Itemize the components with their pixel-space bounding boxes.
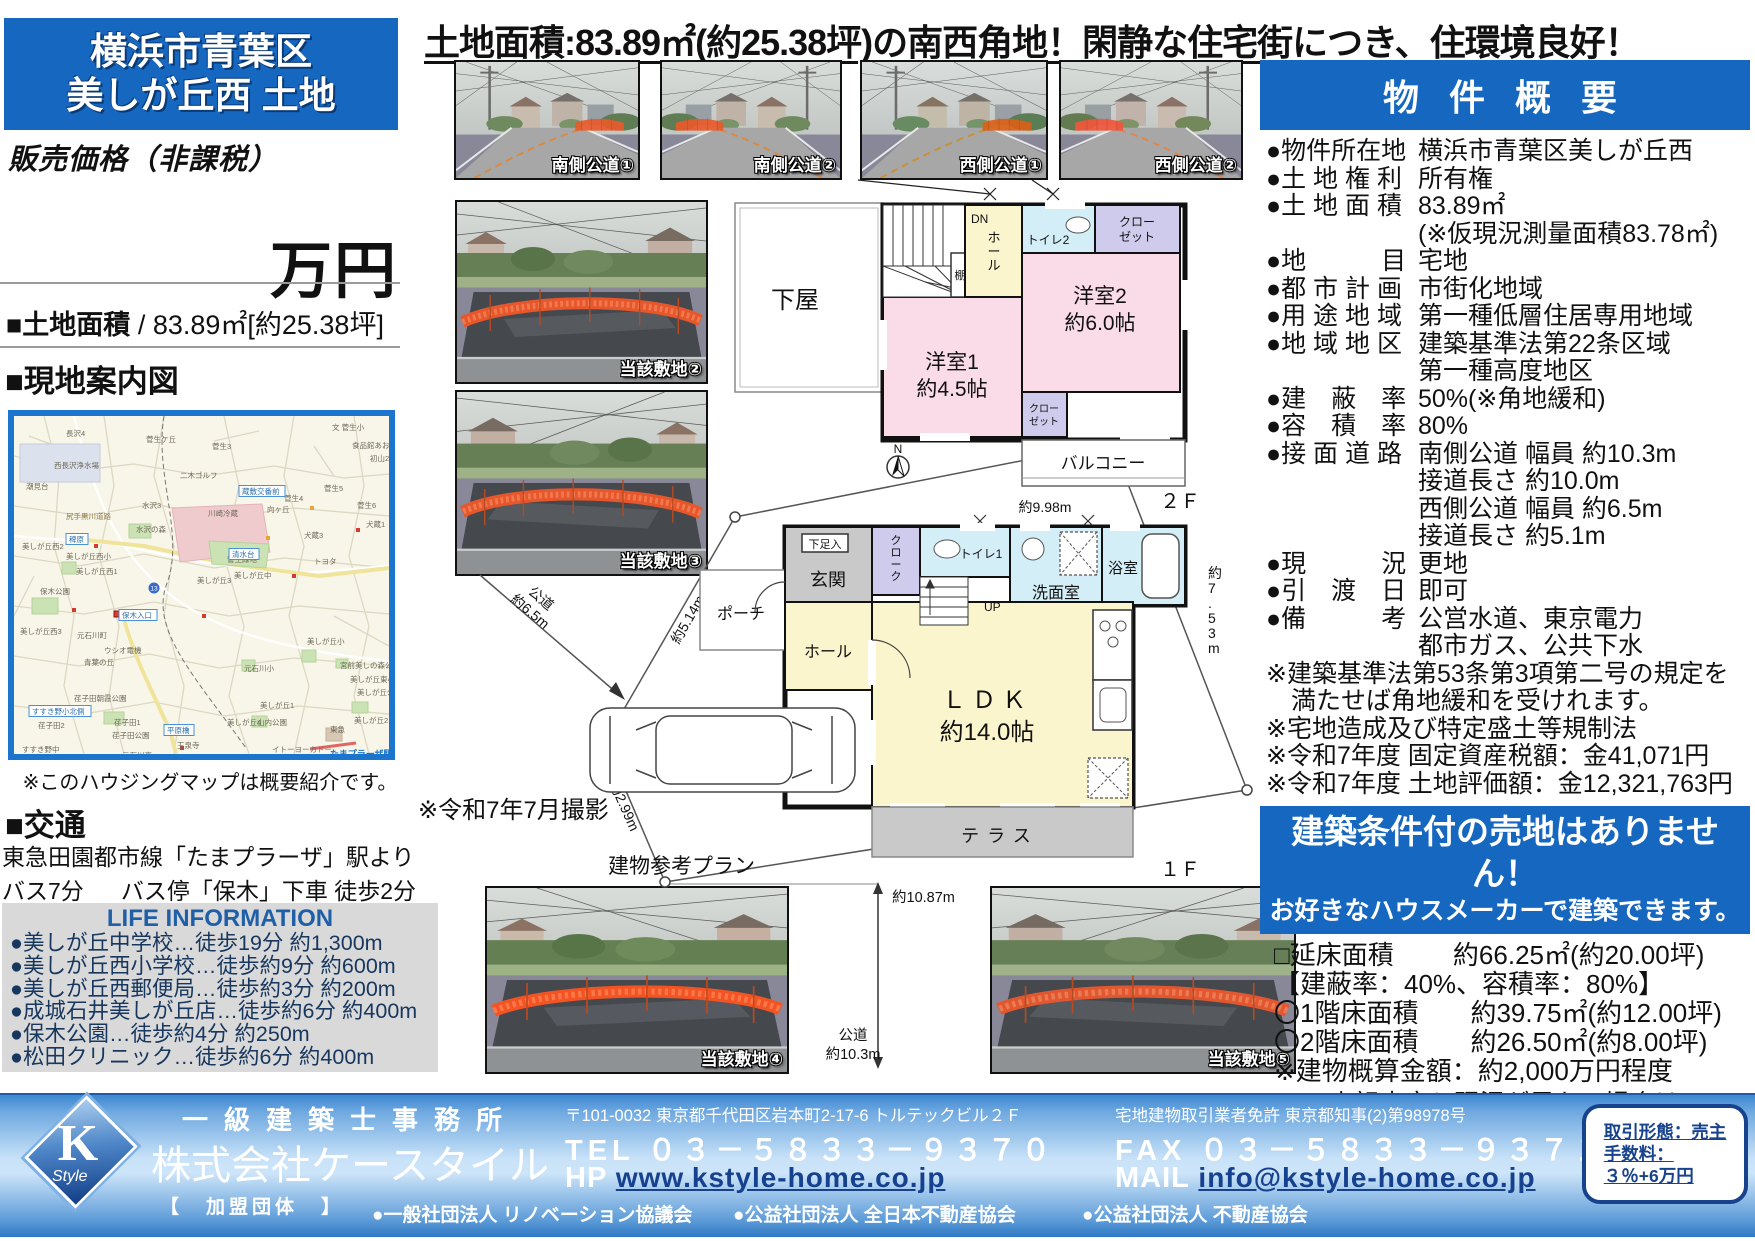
text-line: ３％+6万円 (1604, 1165, 1727, 1187)
map-label: 長沢4 (66, 429, 85, 438)
floor-2f: 下屋 棚 DN ホール トイレ2 クロー ゼット (735, 201, 1200, 513)
company-address: 〒101-0032 東京都千代田区岩本町2-17-6 トルテックビル２Ｆ (565, 1102, 1022, 1126)
label-hall-1f: ホール (804, 644, 852, 661)
member-organization: ●公益社団法人 全日本不動産協会 (733, 1200, 1016, 1227)
label-room1-size: 約4.5帖 (916, 378, 987, 401)
text-line: ※宅地造成及び特定盛土等規制法 (1266, 716, 1755, 744)
divider (0, 282, 400, 284)
map-label: 美しが丘1 (260, 700, 294, 710)
life-info-item: ●保木公園…徒歩約4分 約250m (2, 1023, 438, 1046)
overview-row: ●土 地 面 積83.89㎡(※仮現況測量面積83.78㎡) (1266, 193, 1755, 248)
label-cloak: クローク (891, 534, 902, 583)
text-line: 〇2階床面積 約26.50㎡(約8.00坪) (1274, 1028, 1755, 1057)
label-geya: 下屋 (771, 287, 819, 314)
car-parking (590, 708, 855, 792)
label-balcony: バルコニー (1061, 454, 1146, 473)
text-line: ※建物概算金額：約2,000万円程度 (1274, 1057, 1755, 1086)
label-1f: １Ｆ (1160, 859, 1200, 881)
overview-row-label: ●引 渡 日 (1266, 578, 1418, 606)
hp-line: HP www.kstyle-home.co.jp (565, 1162, 945, 1195)
north-compass: N (887, 442, 909, 478)
overview-row-label: ●土 地 面 積 (1266, 193, 1418, 248)
map-label: 保木入口 (122, 610, 152, 620)
land-area-line: ■土地面積 / 83.89㎡[約25.38坪] (6, 303, 384, 342)
label-ldk: ＬＤＫ (942, 687, 1032, 714)
text-line: 【建蔽率：40%、容積率：80%】 (1274, 970, 1755, 999)
transaction-type-box: 取引形態：売主手数料：３％+6万円 (1582, 1104, 1748, 1204)
area-map: 13 長沢4菅生ケ丘菅生3文 菅生小食品館あおば初山2西長沢浄水場潮見台水沢3尻… (8, 410, 395, 760)
mail-link[interactable]: info@kstyle-home.co.jp (1198, 1162, 1535, 1193)
overview-row: ●備 考公営水道、東京電力都市ガス、公共下水 (1266, 606, 1755, 661)
building-plan-details: □延床面積 約66.25㎡(約20.00坪)【建蔽率：40%、容積率：80%】〇… (1252, 941, 1755, 1086)
overview-row: ●地 域 地 区建築基準法第22条区域第一種高度地区 (1266, 331, 1755, 386)
label-closet-2f-a: クロー (1119, 215, 1155, 229)
overview-row-value: 即可 (1418, 578, 1468, 606)
label-room1: 洋室1 (925, 351, 979, 374)
price-label: 販売価格（非課税） (8, 136, 278, 178)
floor-plan-drawing: 約5.14m 公道 約6.5m 約2.99m 約7.53m 下屋 (460, 170, 1260, 1080)
map-label: 菅生3 (212, 441, 231, 451)
label-dn: DN (971, 212, 988, 226)
kstyle-logo-style: Style (52, 1168, 88, 1186)
label-toilet2: トイレ2 (1027, 233, 1070, 247)
map-label: 荏子田朝霞公園 (74, 694, 127, 703)
label-north: N (894, 442, 903, 456)
kstyle-logo-k: K (30, 1114, 126, 1173)
map-label: 尻手黒川道路 (66, 511, 111, 521)
map-label: 菅生5 (324, 483, 343, 493)
land-area-label: ■土地面積 (6, 310, 130, 340)
map-label: 犬蔵3 (304, 530, 323, 540)
life-info-item: ●美しが丘西郵便局…徒歩約3分 約200m (2, 978, 438, 1001)
overview-row-value: 宅地 (1418, 248, 1468, 276)
life-information-heading: LIFE INFORMATION (2, 906, 438, 932)
text-line: ※令和7年度 土地評価額：金12,321,763円 (1266, 771, 1755, 799)
dim-10-87-label: 約10.87m (892, 889, 955, 906)
map-label: 美しが丘西2 (22, 541, 64, 551)
photo-south-road-1: 南側公道① (454, 60, 640, 180)
label-bath: 浴室 (1108, 560, 1138, 577)
overview-row-value: 南側公道 幅員 約10.3m接道長さ 約10.0m西側公道 幅員 約6.5m接道… (1418, 441, 1676, 551)
map-label: 文 菅生小 (332, 422, 365, 432)
map-label: 元石川町 (77, 631, 107, 640)
photo-west-road-1: 西側公道① (860, 60, 1048, 180)
map-label: 菅生ケ丘 (146, 434, 176, 444)
road-arrowhead (609, 682, 625, 700)
map-label: トヨタ (314, 557, 337, 566)
label-genkan: 玄関 (810, 570, 846, 590)
map-label: 元石川高 (122, 750, 152, 754)
mail-line: MAIL info@kstyle-home.co.jp (1115, 1162, 1536, 1195)
title-line1: 横浜市青葉区 (90, 30, 312, 74)
map-label: 犬蔵1 (366, 519, 385, 529)
map-label: 蔵敷交番前 (242, 486, 280, 496)
label-shelf: 棚 (955, 268, 966, 282)
title-line2: 美しが丘西 土地 (66, 74, 335, 118)
map-label: 美しが丘西1 (76, 566, 118, 576)
map-section-heading: ■現地案内図 (5, 356, 179, 401)
overview-row-value: 市街化地域 (1418, 276, 1543, 304)
banner-line2: お好きなハウスメーカーで建築できます。 (1260, 895, 1750, 927)
life-info-item: ●成城石井美しが丘店…徒歩約6分 約400m (2, 1000, 438, 1023)
label-hall-2f: ホール (987, 230, 1000, 273)
overview-row: ●建 蔽 率50%(※角地緩和) (1266, 386, 1755, 414)
hp-link[interactable]: www.kstyle-home.co.jp (616, 1162, 946, 1193)
text-line: 取引形態：売主 (1604, 1121, 1727, 1143)
map-label: すすき野中 (22, 744, 60, 754)
map-label: 荏子田2 (38, 721, 65, 730)
map-label: 稗原 (69, 534, 84, 544)
map-label: 初山2 (370, 453, 389, 463)
label-up: UP (984, 600, 1001, 614)
overview-row: ●引 渡 日即可 (1266, 578, 1755, 606)
map-label: 清水台 (232, 549, 255, 559)
map-label: 宮前美しの森公園 (340, 660, 389, 670)
kitchen (1093, 610, 1132, 730)
text-line: 手数料： (1604, 1143, 1727, 1165)
transaction-type-lines: 取引形態：売主手数料：３％+6万円 (1604, 1121, 1727, 1187)
map-canvas: 13 長沢4菅生ケ丘菅生3文 菅生小食品館あおば初山2西長沢浄水場潮見台水沢3尻… (14, 416, 389, 754)
banner-line1: 建築条件付の売地はありません！ (1260, 811, 1750, 895)
map-label: 向ヶ丘 (267, 504, 290, 514)
overview-row-label: ●土 地 権 利 (1266, 166, 1418, 194)
label-porch: ポーチ (717, 605, 765, 623)
map-label: 荏子田公園 (112, 731, 150, 740)
label-closet2-a: クロー (1029, 403, 1059, 415)
map-label: 美しが丘中 (234, 570, 272, 580)
overview-row: ●土 地 権 利所有権 (1266, 166, 1755, 194)
map-label: 美しが丘3 (197, 575, 231, 585)
overview-row-label: ●用 途 地 域 (1266, 303, 1418, 331)
overview-row: ●地 目宅地 (1266, 248, 1755, 276)
overview-row-label: ●都 市 計 画 (1266, 276, 1418, 304)
map-label: たまプラーザ駅 (330, 748, 389, 754)
map-label: 美しが丘西3 (20, 626, 62, 636)
map-label: 菅生6 (357, 500, 376, 510)
map-label: 美しが丘東小 (350, 674, 389, 684)
overview-row-value: 公営水道、東京電力都市ガス、公共下水 (1418, 606, 1643, 661)
dim-road-west: 公道 約6.5m (508, 578, 564, 632)
overview-row-label: ●接 面 道 路 (1266, 441, 1418, 551)
map-label: イトーヨーカドー (272, 745, 332, 754)
overview-row-label: ●地 域 地 区 (1266, 331, 1418, 386)
overview-row: ●物件所在地横浜市青葉区美しが丘西 (1266, 138, 1755, 166)
map-label: 青葉の丘 (84, 657, 114, 667)
dim-10-87: 約10.87m (873, 882, 955, 1069)
map-label: 川崎冷蔵 (208, 508, 238, 518)
divider (0, 346, 400, 348)
map-label: 玉泉寺 (177, 740, 200, 750)
floor-1f: 約9.98m ポーチ 下足入 玄関 クローク トイレ1 (700, 499, 1200, 881)
text-line: 〇1階床面積 約39.75㎡(約12.00坪) (1274, 999, 1755, 1028)
map-label: 山内公園 (257, 717, 287, 727)
map-label: 水沢3 (142, 500, 161, 510)
company-name: 株式会社ケースタイル (140, 1133, 560, 1191)
overview-row: ●現 況更地 (1266, 551, 1755, 579)
map-label: 食品館あおば (352, 440, 389, 450)
property-overview-panel: 物 件 概 要 ●物件所在地横浜市青葉区美しが丘西●土 地 権 利所有権●土 地… (1252, 60, 1755, 1145)
text-line: ※建築基準法第53条第3項第二号の規定を (1266, 661, 1755, 689)
overview-row: ●用 途 地 域第一種低層住居専用地域 (1266, 303, 1755, 331)
map-route-number: 13 (150, 586, 158, 593)
photo-direction-lines (858, 180, 1059, 200)
overview-row-label: ●地 目 (1266, 248, 1418, 276)
label-road-south-1: 公道 (839, 1027, 868, 1044)
overview-heading: 物 件 概 要 (1260, 60, 1750, 130)
flyer-page: 横浜市青葉区 美しが丘西 土地 販売価格（非課税） 万円 ■土地面積 / 83.… (0, 0, 1755, 1241)
map-label: 水沢の森 (136, 524, 166, 534)
map-label: 荏子田1 (114, 718, 141, 727)
license-number: 宅地建物取引業者免許 東京都知事(2)第98978号 (1115, 1102, 1466, 1126)
office-type: 一級建築士事務所 (150, 1100, 550, 1137)
life-information-box: LIFE INFORMATION ●美しが丘中学校…徒歩19分 約1,300m●… (2, 903, 438, 1072)
map-label: ウシオ電機 (104, 645, 142, 655)
map-label: 美しが丘2 (354, 715, 388, 725)
label-room2: 洋室2 (1073, 285, 1127, 308)
overview-row-value: 更地 (1418, 551, 1468, 579)
map-label: 元石川小 (244, 664, 274, 673)
mail-label: MAIL (1115, 1162, 1189, 1194)
map-label: 平原橋 (167, 725, 190, 735)
price-unit: 万円 (0, 220, 398, 310)
map-label: 美しが丘4 (227, 717, 261, 727)
land-area-value: / 83.89㎡[約25.38坪] (130, 310, 384, 340)
overview-row-value: 50%(※角地緩和) (1418, 386, 1606, 414)
life-information-list: ●美しが丘中学校…徒歩19分 約1,300m●美しが丘西小学校…徒歩約9分 約6… (2, 932, 438, 1069)
map-label: 潮見台 (26, 481, 49, 491)
overview-row: ●容 積 率80% (1266, 413, 1755, 441)
label-toilet1: トイレ1 (960, 547, 1003, 561)
label-ldk-size: 約14.0帖 (940, 719, 1035, 746)
dim-7-53: 約7.53m (1208, 565, 1222, 656)
property-title-box: 横浜市青葉区 美しが丘西 土地 (4, 18, 398, 130)
floor-hatch-box (1088, 758, 1128, 798)
washer-space (1060, 532, 1097, 575)
overview-row-value: 横浜市青葉区美しが丘西 (1418, 138, 1693, 166)
map-label: 菅生4 (284, 493, 303, 503)
overview-notes: ※建築基準法第53条第3項第二号の規定を 満たせば角地緩和を受けれます。※宅地造… (1252, 661, 1755, 799)
overview-row: ●接 面 道 路南側公道 幅員 約10.3m接道長さ 約10.0m西側公道 幅員… (1266, 441, 1755, 551)
label-2f: ２Ｆ (1160, 491, 1200, 513)
overview-row-label: ●物件所在地 (1266, 138, 1418, 166)
label-closet-2f-b: ゼット (1119, 230, 1155, 244)
photo-west-road-2: 西側公道② (1059, 60, 1243, 180)
overview-row: ●都 市 計 画市街化地域 (1266, 276, 1755, 304)
text-line: □延床面積 約66.25㎡(約20.00坪) (1274, 941, 1755, 970)
label-wash: 洗面室 (1032, 584, 1080, 602)
label-road-south-2: 約10.3m (826, 1046, 881, 1063)
map-label: 美しが丘公園 (357, 687, 389, 697)
photo-south-road-2: 南側公道② (660, 60, 842, 180)
map-label: すすき野小北側 (32, 706, 85, 716)
life-info-item: ●美しが丘西小学校…徒歩約9分 約600m (2, 955, 438, 978)
map-label: 美しが丘西小 (66, 551, 111, 561)
label-plan-note: 建物参考プラン (608, 855, 755, 878)
overview-row-value: 83.89㎡(※仮現況測量面積83.78㎡) (1418, 193, 1718, 248)
text-line: 満たせば角地緩和を受けれます。 (1266, 688, 1755, 716)
life-info-item: ●美しが丘中学校…徒歩19分 約1,300m (2, 932, 438, 955)
label-terrace: テラス (961, 826, 1039, 846)
overview-row-label: ●備 考 (1266, 606, 1418, 661)
overview-row-value: 所有権 (1418, 166, 1493, 194)
member-organization: ●公益社団法人 不動産協会 (1082, 1200, 1308, 1227)
text-line: ※令和7年度 固定資産税額：金41,071円 (1266, 743, 1755, 771)
map-label: 二木ゴルフ (180, 470, 218, 480)
overview-row-value: 第一種低層住居専用地域 (1418, 303, 1693, 331)
map-note: ※このハウジングマップは概要紹介です。 (0, 766, 420, 795)
label-shoe: 下足入 (809, 539, 842, 551)
headline: 土地面積:83.89㎡(約25.38坪)の南西角地！閑静な住宅街につき、住環境良… (424, 14, 1755, 66)
overview-row-label: ●建 蔽 率 (1266, 386, 1418, 414)
life-info-item: ●松田クリニック…徒歩約6分 約400m (2, 1046, 438, 1069)
label-room2-size: 約6.0帖 (1064, 312, 1135, 335)
stairs-1f (920, 577, 968, 625)
overview-row-value: 建築基準法第22条区域第一種高度地区 (1418, 331, 1671, 386)
map-label: 保木公園 (40, 586, 70, 596)
overview-row-label: ●現 況 (1266, 551, 1418, 579)
map-label: 美しが丘小 (307, 636, 345, 646)
overview-row-label: ●容 積 率 (1266, 413, 1418, 441)
member-organization: ●一般社団法人 リノベーション協議会 (372, 1200, 692, 1227)
label-closet2-b: ゼット (1029, 416, 1059, 428)
overview-rows: ●物件所在地横浜市青葉区美しが丘西●土 地 権 利所有権●土 地 面 積83.8… (1252, 138, 1755, 661)
no-building-conditions-banner: 建築条件付の売地はありません！ お好きなハウスメーカーで建築できます。 (1260, 806, 1750, 934)
dim-9-98: 約9.98m (1019, 499, 1072, 515)
overview-row-value: 80% (1418, 413, 1468, 441)
map-label: 東急 (330, 724, 345, 734)
map-label: 西長沢浄水場 (54, 460, 99, 470)
hp-label: HP (565, 1162, 607, 1194)
